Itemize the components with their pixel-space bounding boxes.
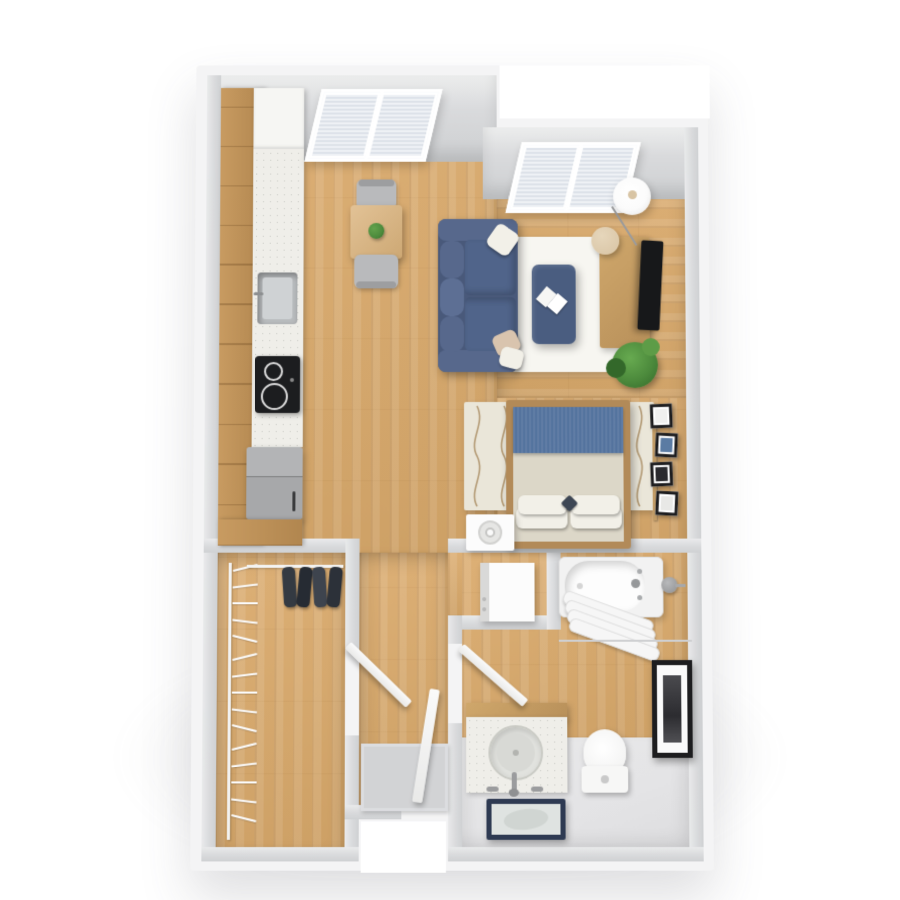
clothes-hanger	[232, 672, 257, 677]
hanging-garment	[282, 566, 298, 607]
tv	[637, 240, 663, 330]
photo-ledge	[650, 404, 681, 520]
kitchen-window	[304, 89, 442, 162]
appliance-knob-2	[482, 607, 486, 611]
outer-mask-topright	[500, 65, 710, 118]
hanging-garment	[296, 566, 313, 607]
wall-closet-east-lower	[344, 735, 359, 847]
double-bed	[506, 400, 631, 549]
photo-frame	[655, 491, 678, 516]
kitchen-refrigerator	[246, 447, 303, 519]
clothes-hanger	[231, 762, 256, 767]
chair-north-back	[359, 179, 395, 186]
floor-niche-gap	[448, 553, 462, 616]
refrigerator-seam	[246, 476, 302, 477]
refrigerator-handle	[292, 491, 295, 511]
floor-lamp-shade	[613, 178, 651, 216]
tub-handle-1	[637, 569, 642, 574]
photo-frame	[650, 404, 673, 429]
clothes-hanger	[232, 743, 257, 751]
towel-rack	[561, 605, 662, 654]
clothes-hanger	[232, 725, 257, 733]
toilet-tank	[582, 766, 629, 793]
rug-wave-line	[474, 406, 479, 506]
vanity-handle-left	[486, 787, 498, 792]
clothes-hanger	[232, 635, 257, 643]
wall-bath-west-lower	[448, 723, 462, 847]
cooktop-burner-large	[261, 383, 288, 410]
kitchen-tall-cabinet	[253, 88, 304, 149]
hanging-garment	[312, 566, 328, 607]
closet-hanging-clothes	[283, 563, 348, 612]
tub-drain	[577, 583, 583, 589]
table-plant	[368, 223, 384, 239]
sofa-back-cushion-3	[440, 316, 464, 352]
closet-hangers	[227, 567, 269, 842]
vanity-faucet-head	[509, 789, 519, 797]
side-table	[591, 227, 619, 255]
photo-frame-image	[660, 496, 673, 511]
appliance-knob-1	[482, 597, 486, 601]
niche-appliance-box	[480, 563, 534, 622]
wall-south-closet	[201, 847, 358, 861]
bed-pillow-left-upper	[518, 495, 566, 514]
kitchen-sink-basin	[262, 277, 292, 319]
chair-south-back	[356, 281, 396, 288]
clothes-hanger	[232, 619, 257, 624]
clothes-hanger	[232, 708, 257, 713]
kitchen-sink	[257, 272, 297, 324]
towel-rail-line	[559, 640, 692, 642]
toilet-flush-button	[601, 775, 609, 783]
sofa-back-cushion-1	[440, 241, 464, 279]
plant-leaf-blob-2	[642, 338, 660, 356]
towel-knob-stem	[675, 584, 685, 587]
photo-frame	[655, 432, 678, 457]
vanity-sink-drain	[513, 750, 519, 756]
speaker-ring-inner	[485, 527, 495, 537]
cooktop-knob	[290, 378, 294, 382]
sofa	[438, 219, 518, 372]
clothes-hanger	[232, 653, 257, 661]
sofa-back-cushion-2	[440, 278, 464, 316]
tub-faucet	[631, 579, 640, 588]
photo-frame-image	[655, 409, 668, 423]
clothes-hanger	[231, 782, 256, 784]
photo-frame	[650, 462, 673, 487]
leaning-mirror	[486, 799, 565, 840]
dining-table	[350, 205, 402, 258]
nightstand	[466, 514, 514, 550]
bed-pillow-right-upper	[571, 495, 619, 514]
cooktop-burner-small	[264, 362, 283, 381]
wall-art-image	[663, 675, 682, 742]
clothes-hanger	[233, 583, 258, 588]
floorplan-image	[0, 0, 900, 900]
kitchen-base-cabinet-south	[218, 519, 303, 545]
entry-doormat	[361, 744, 448, 812]
wall-south-bathroom	[448, 847, 704, 861]
photo-frame-image	[655, 467, 668, 481]
plant-leaf-blob-1	[606, 358, 626, 378]
mirror-reflection	[503, 807, 550, 832]
vanity-handle-right	[531, 787, 543, 792]
vanity-counter	[466, 717, 567, 793]
lamp-bulb-dot	[628, 190, 637, 199]
kitchen-faucet-icon	[254, 292, 264, 295]
rug-wave-line	[637, 406, 643, 506]
outer-mask-hall-recess	[361, 821, 446, 872]
dining-chair-south	[354, 255, 398, 289]
photo-frame-image	[660, 438, 673, 453]
ottoman	[532, 265, 576, 345]
hanging-garment	[326, 566, 343, 607]
clothes-hanger	[232, 692, 257, 694]
bed-blue-blanket	[513, 407, 623, 453]
living-potted-plant	[612, 342, 658, 388]
clothes-hanger	[232, 602, 257, 604]
bathroom-wall-art	[652, 660, 693, 758]
floor-plan	[0, 5, 900, 900]
clothes-hanger	[231, 798, 256, 803]
tub-handle-2	[637, 595, 642, 600]
kitchen-cooktop	[255, 356, 300, 413]
wall-bath-west-stub	[448, 615, 462, 643]
clothes-hanger	[231, 815, 256, 823]
